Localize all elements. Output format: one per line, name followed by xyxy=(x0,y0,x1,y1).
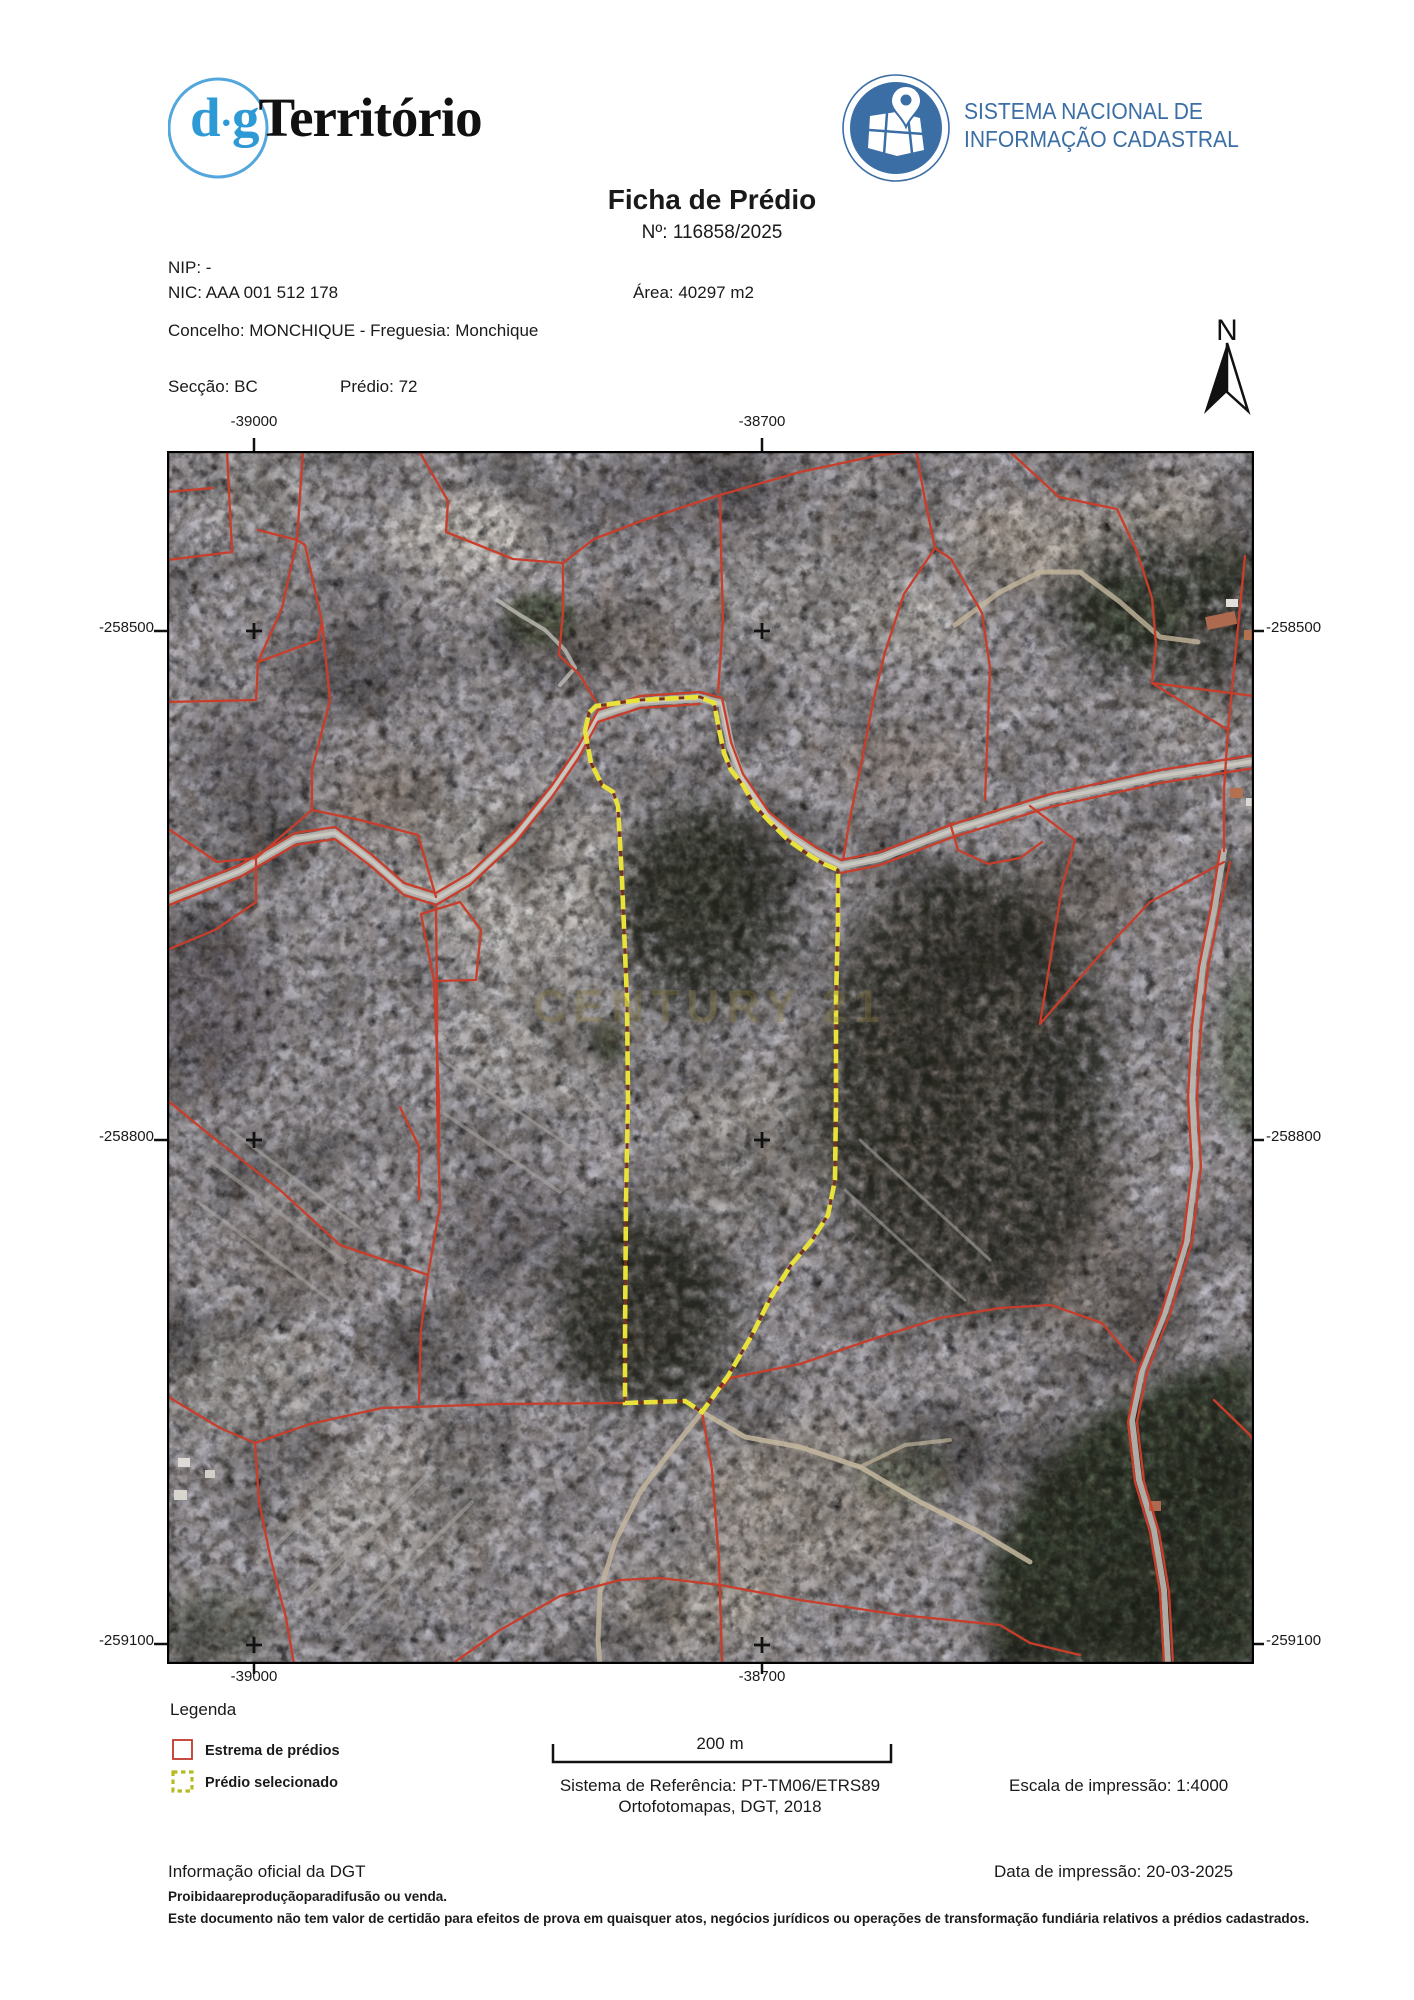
svg-text:CENTURY 21: CENTURY 21 xyxy=(533,980,887,1032)
